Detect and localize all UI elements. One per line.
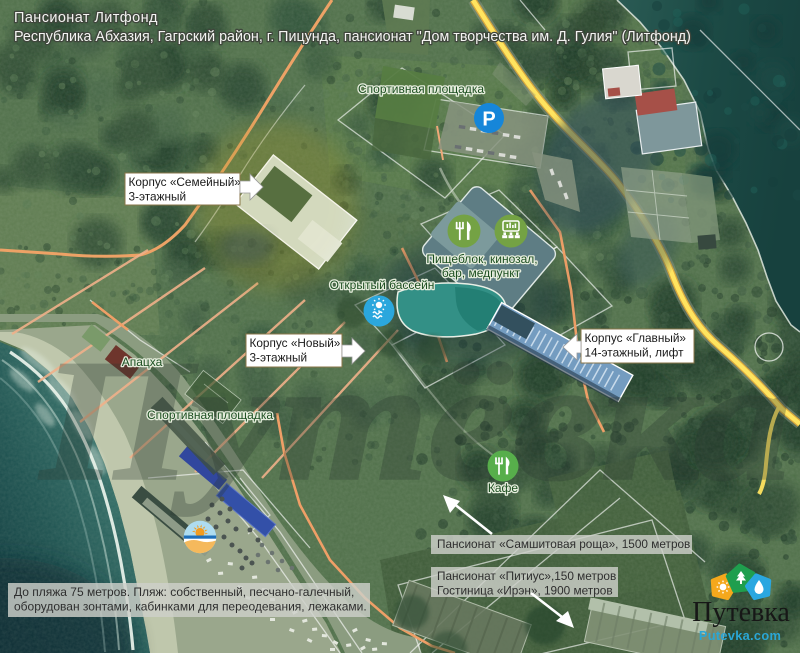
svg-text:Путевка: Путевка	[692, 597, 790, 628]
svg-text:Пансионат «Питиус»,150 метров: Пансионат «Питиус»,150 метров	[437, 569, 616, 583]
svg-text:Putevka.com: Putevka.com	[699, 628, 781, 643]
svg-text:Кафе: Кафе	[488, 481, 519, 495]
svg-text:Открытый бассейн: Открытый бассейн	[330, 278, 435, 292]
svg-text:Пансионат «Самшитовая роща», 1: Пансионат «Самшитовая роща», 1500 метров	[437, 537, 690, 551]
svg-text:оборудован зонтами, кабинками: оборудован зонтами, кабинками для переод…	[14, 600, 367, 614]
svg-text:Спортивная площадка: Спортивная площадка	[358, 82, 484, 96]
svg-text:Республика Абхазия, Гагрский р: Республика Абхазия, Гагрский район, г. П…	[14, 29, 691, 45]
svg-text:3-этажный: 3-этажный	[250, 351, 308, 365]
svg-text:Апацха: Апацха	[122, 355, 163, 369]
svg-text:Корпус «Семейный»: Корпус «Семейный»	[129, 175, 242, 189]
svg-text:Спортивная площадка: Спортивная площадка	[147, 408, 273, 422]
svg-text:3-этажный: 3-этажный	[129, 190, 187, 204]
svg-text:Корпус «Новый»: Корпус «Новый»	[250, 336, 341, 350]
svg-text:До пляжа 75 метров. Пляж: собс: До пляжа 75 метров. Пляж: собственный, п…	[14, 585, 354, 599]
svg-text:Пищеблок, кинозал,: Пищеблок, кинозал,	[426, 252, 537, 266]
svg-text:Пансионат Литфонд: Пансионат Литфонд	[14, 10, 158, 26]
svg-text:P: P	[482, 109, 495, 131]
svg-text:бар, медпункт: бар, медпункт	[442, 266, 521, 280]
svg-text:Корпус «Главный»: Корпус «Главный»	[585, 331, 687, 345]
svg-text:14-этажный, лифт: 14-этажный, лифт	[585, 346, 685, 360]
svg-text:Гостиница «Ирэн», 1900 метров: Гостиница «Ирэн», 1900 метров	[437, 584, 613, 598]
